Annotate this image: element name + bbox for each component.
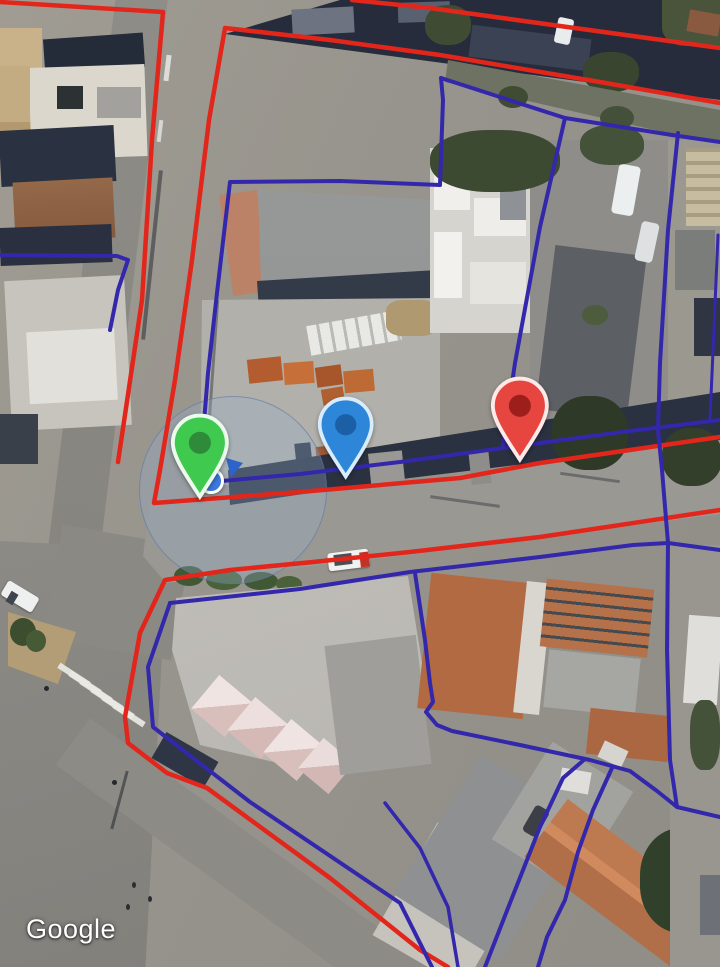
parcel-southcenter-divider-b: [538, 768, 612, 967]
map-canvas[interactable]: Google: [0, 0, 720, 967]
parcel-southcenter-divider-a: [485, 759, 585, 967]
parcel-west-and-south-edge: [199, 78, 720, 483]
parcel-southwest-inner: [148, 603, 432, 967]
red-boundary-northwest-block: [0, 2, 163, 462]
parcel-divider-2: [658, 133, 720, 817]
parcel-overlay: [0, 0, 720, 967]
parcel-divider-3: [710, 235, 718, 420]
parcel-southcenter-west-edge: [415, 573, 677, 807]
google-watermark: Google: [26, 914, 116, 945]
parcel-south-north-edge: [170, 543, 720, 603]
red-boundary-south-block: [125, 510, 720, 967]
red-boundary-north-upper: [352, 0, 720, 48]
green-pin[interactable]: [169, 413, 231, 500]
blue-pin[interactable]: [316, 396, 375, 480]
red-pin[interactable]: [489, 376, 551, 463]
parcel-northwest-inner: [0, 255, 128, 330]
